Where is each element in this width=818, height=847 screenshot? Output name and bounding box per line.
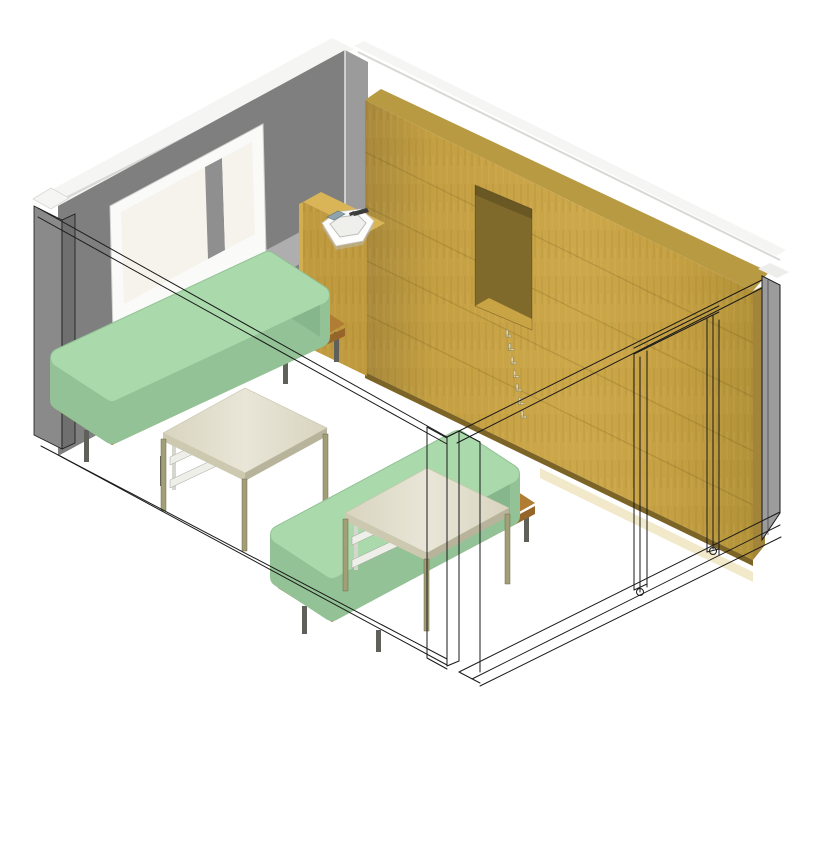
- table-leg: [323, 434, 328, 504]
- isometric-room-svg: [0, 0, 818, 847]
- corner-wall: [345, 50, 368, 232]
- front-wall-base-line: [472, 525, 780, 679]
- bed-leg: [302, 606, 307, 634]
- table-leg: [505, 514, 510, 584]
- front-wall-base-line: [480, 537, 781, 686]
- left-wall-cut-face: [34, 206, 62, 449]
- right-wall-cut-face: [762, 276, 780, 540]
- room-3d-view: [0, 0, 818, 847]
- table-leg: [161, 439, 166, 511]
- table-leg: [242, 479, 247, 551]
- table-leg: [343, 519, 348, 591]
- window-mullion: [205, 158, 225, 259]
- window-pane-small: [222, 142, 255, 250]
- wall-niche: [475, 185, 532, 330]
- bed-leg: [376, 630, 381, 652]
- right-wall-cut: [758, 263, 789, 540]
- bed-leg: [84, 430, 89, 462]
